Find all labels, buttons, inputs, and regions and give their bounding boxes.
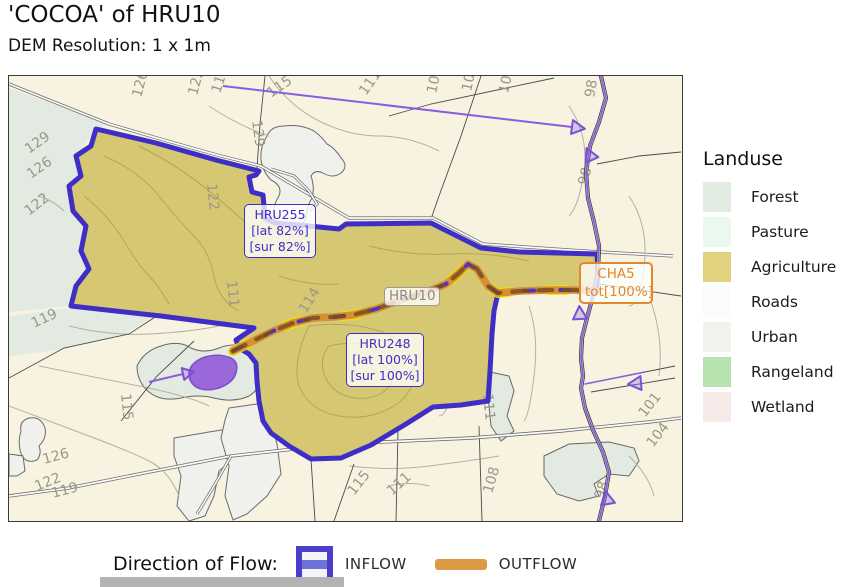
legend-item-urban: Urban	[703, 322, 836, 352]
horizontal-scrollbar[interactable]	[100, 577, 344, 587]
contour-label: 111	[223, 280, 242, 308]
legend-item-agriculture: Agriculture	[703, 252, 836, 282]
pasture-swatch	[703, 217, 731, 247]
outflow-icon	[435, 559, 487, 570]
contour-label: 115	[264, 76, 295, 101]
contour-label: 108	[480, 465, 503, 495]
agriculture-swatch	[703, 252, 731, 282]
hru255-title: HRU255	[248, 207, 312, 223]
outflow-label: OUTFLOW	[499, 555, 578, 573]
contour-label: 126	[41, 445, 71, 467]
legend-label: Forest	[751, 188, 799, 206]
legend-label: Agriculture	[751, 258, 836, 276]
wetland-swatch	[703, 392, 731, 422]
hru248-title: HRU248	[350, 336, 420, 352]
inflow-icon-stripe	[302, 560, 327, 569]
hru255-annotation: HRU255 [lat 82%] [sur 82%]	[244, 204, 316, 258]
page-title: 'COCOA' of HRU10	[8, 2, 220, 28]
hru248-annotation: HRU248 [lat 100%] [sur 100%]	[346, 333, 424, 387]
inflow-line-long	[223, 86, 572, 127]
contour-label: 108	[424, 76, 445, 95]
landuse-legend-title: Landuse	[703, 148, 836, 170]
contour-label: 98	[582, 78, 601, 98]
contour-label: 115	[117, 393, 136, 421]
contour-label: 126	[129, 76, 151, 99]
urban-swatch	[703, 322, 731, 352]
contour-label: 122	[185, 76, 207, 97]
legend-label: Roads	[751, 293, 798, 311]
contour-label: 119	[209, 76, 232, 95]
legend-item-forest: Forest	[703, 182, 836, 212]
app-window: 'COCOA' of HRU10 DEM Resolution: 1 x 1m	[0, 0, 862, 587]
contour-label: 104	[644, 419, 673, 450]
rangeland-swatch	[703, 357, 731, 387]
legend-label: Wetland	[751, 398, 815, 416]
contour-label: 111	[384, 469, 415, 499]
legend-item-pasture: Pasture	[703, 217, 836, 247]
contour-label: 104	[459, 76, 480, 93]
roads-swatch	[703, 287, 731, 317]
landuse-legend: Landuse Forest Pasture Agriculture Roads…	[703, 148, 836, 427]
hru248-lat: [lat 100%]	[350, 352, 420, 368]
hru10-annotation: HRU10	[384, 287, 440, 306]
dem-resolution-subtitle: DEM Resolution: 1 x 1m	[8, 36, 211, 56]
cha5-title: CHA5	[585, 265, 647, 283]
contour-label: 115	[345, 468, 374, 499]
legend-label: Urban	[751, 328, 798, 346]
arrowhead-icon	[572, 306, 587, 320]
legend-label: Pasture	[751, 223, 809, 241]
contour-label: 129	[248, 119, 268, 148]
cha5-tot: tot[100%]	[585, 283, 647, 301]
contour-label: 111	[356, 76, 384, 98]
legend-item-rangeland: Rangeland	[703, 357, 836, 387]
arrowhead-icon	[627, 376, 641, 391]
inflow-label: INFLOW	[345, 555, 407, 573]
contour-label: 122	[203, 183, 222, 211]
hru248-sur: [sur 100%]	[350, 368, 420, 384]
contour-label: 101	[496, 76, 517, 95]
map-canvas: 1291261221261221191291151111081041019898…	[8, 75, 683, 522]
hru255-lat: [lat 82%]	[248, 223, 312, 239]
legend-item-roads: Roads	[703, 287, 836, 317]
forest-swatch	[703, 182, 731, 212]
contour-label: 101	[636, 390, 665, 421]
hru255-sur: [sur 82%]	[248, 239, 312, 255]
legend-label: Rangeland	[751, 363, 834, 381]
hru10-title: HRU10	[389, 288, 435, 305]
legend-item-wetland: Wetland	[703, 392, 836, 422]
flow-legend-title: Direction of Flow:	[113, 553, 278, 575]
cha5-annotation: CHA5 tot[100%]	[579, 262, 653, 304]
